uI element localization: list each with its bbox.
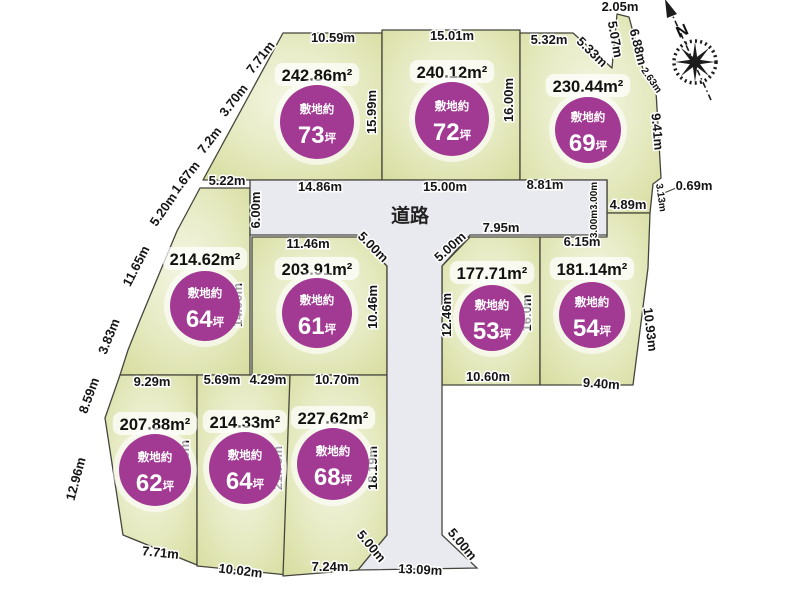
dimension-label: 12.96m (63, 456, 89, 502)
dimension-label: 12.46m (439, 293, 454, 337)
dimension-label: 10.59m (311, 30, 355, 45)
dimension-label: 2.05m (602, 0, 639, 14)
north-arrow-head (665, 0, 677, 18)
dimension-label: 15.99m (364, 90, 379, 134)
dimension-label: 8.59m (75, 376, 102, 416)
badge-prefix-68: 敷地約 (316, 444, 351, 458)
dimension-label: 11.65m (119, 243, 152, 288)
dimension-label: 10.60m (466, 369, 510, 384)
compass-star (675, 42, 715, 82)
badge-prefix-69: 敷地約 (571, 110, 606, 124)
badge-prefix-54: 敷地約 (575, 295, 610, 309)
dimension-label: 8.81m (527, 177, 564, 192)
dimension-label: 0.69m (676, 178, 713, 193)
road-label: 道路 (391, 204, 430, 227)
badge-prefix-64b: 敷地約 (228, 448, 263, 462)
land-plot-diagram: 道路 10.59m15.01m5.32m2.05m7.71m3.70m7.2m1… (0, 0, 800, 600)
dimension-label: 7.71m (141, 543, 179, 562)
dimension-label: 5.32m (531, 32, 568, 47)
dimension-label: 16.00m (501, 78, 516, 122)
dimension-label: 7.95m (483, 220, 520, 235)
dimension-label: 5.20m (147, 190, 180, 229)
dimension-label: 13.09m (398, 561, 443, 578)
dimension-label: 15.00m (423, 179, 467, 194)
badge-prefix-53: 敷地約 (475, 298, 510, 312)
north-label: N (674, 21, 691, 41)
dimension-label: 7.24m (312, 559, 349, 574)
dimension-label: 1.67m (168, 158, 203, 196)
dimension-label: 9.29m (134, 374, 171, 389)
badge-prefix-61: 敷地約 (300, 293, 335, 307)
dimension-label: 6.15m (564, 234, 601, 249)
dimension-label: 10.70m (315, 372, 359, 387)
land-plot-svg: 道路 10.59m15.01m5.32m2.05m7.71m3.70m7.2m1… (0, 0, 800, 600)
dimension-label: 15.01m (430, 28, 474, 43)
dimension-label: 4.89m (610, 197, 647, 212)
badge-prefix-73: 敷地約 (300, 102, 335, 116)
badge-prefix-72: 敷地約 (435, 99, 470, 113)
dimension-label: 5.22m (209, 173, 246, 188)
dimension-label: 6.00m (248, 192, 263, 229)
dimension-label: 5.69m (204, 372, 241, 387)
badge-prefix-62: 敷地約 (138, 450, 173, 464)
dimension-label: 9.41m (648, 113, 666, 151)
dimension-label: 3.00m (589, 182, 600, 210)
dimension-label: 9.40m (582, 375, 620, 393)
dimension-label: 3.13m (653, 183, 668, 213)
dimension-label: 10.93m (640, 307, 660, 353)
dimension-label: 10.46m (365, 285, 380, 329)
compass-rose: N (665, 0, 716, 100)
dimension-label: 11.46m (286, 236, 329, 251)
dimension-label: 3.83m (95, 316, 123, 356)
badge-prefix-64: 敷地約 (188, 286, 223, 300)
dimension-label: 14.86m (298, 179, 342, 194)
dimension-label: 4.29m (250, 372, 287, 387)
